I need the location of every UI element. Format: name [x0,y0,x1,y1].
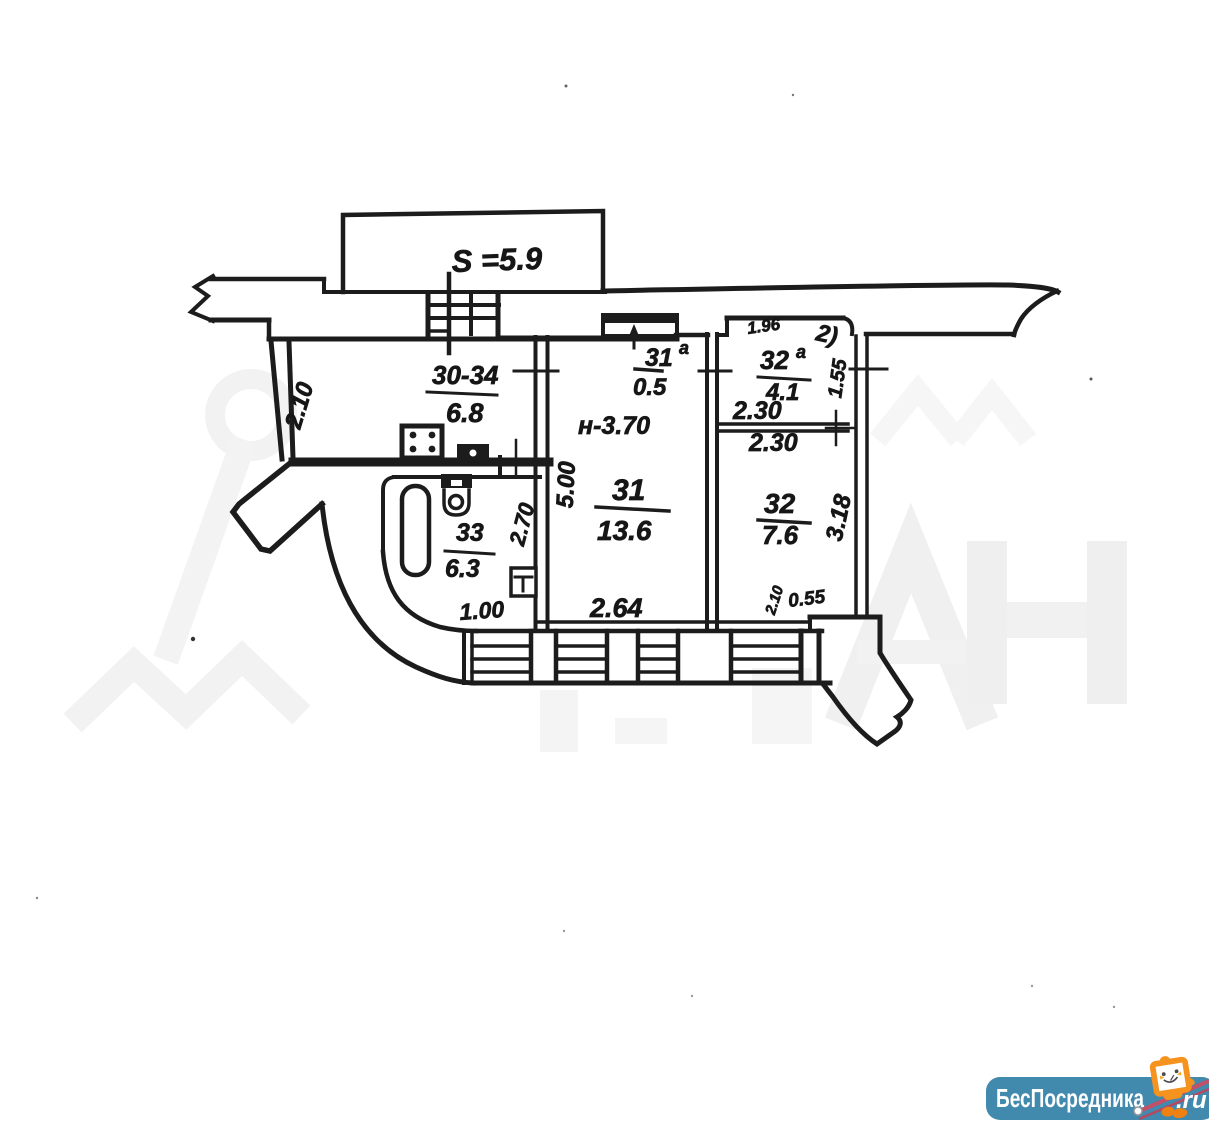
svg-text:БесПосредника: БесПосредника [996,1083,1144,1113]
svg-text:1.96: 1.96 [746,314,782,337]
svg-text:0.55: 0.55 [787,587,827,612]
svg-text:32: 32 [760,345,789,375]
svg-text:1.00: 1.00 [459,596,506,625]
svg-text:2.30: 2.30 [732,397,782,425]
svg-text:31: 31 [612,474,645,507]
svg-text:31: 31 [645,344,673,372]
svg-text:32: 32 [764,488,796,519]
svg-text:1.55: 1.55 [824,357,851,399]
svg-text:30-34: 30-34 [432,360,499,390]
svg-text:2.30: 2.30 [748,429,798,457]
svg-text:а: а [796,342,806,362]
svg-text:а: а [679,338,689,358]
svg-text:0.5: 0.5 [633,374,667,401]
svg-text:7.6: 7.6 [762,520,799,550]
svg-text:2.64: 2.64 [589,593,643,623]
svg-text:2.10: 2.10 [762,583,788,618]
svg-text:.ru: .ru [1176,1087,1207,1114]
svg-text:6.8: 6.8 [446,398,484,428]
svg-text:3.18: 3.18 [821,491,857,543]
svg-text:S =5.9: S =5.9 [451,241,543,279]
svg-text:5.00: 5.00 [552,460,581,509]
svg-text:2): 2) [813,319,840,350]
svg-text:13.6: 13.6 [597,515,652,546]
svg-text:6.3: 6.3 [445,555,480,583]
svg-text:33: 33 [456,519,484,547]
svg-text:н-3.70: н-3.70 [578,412,650,440]
